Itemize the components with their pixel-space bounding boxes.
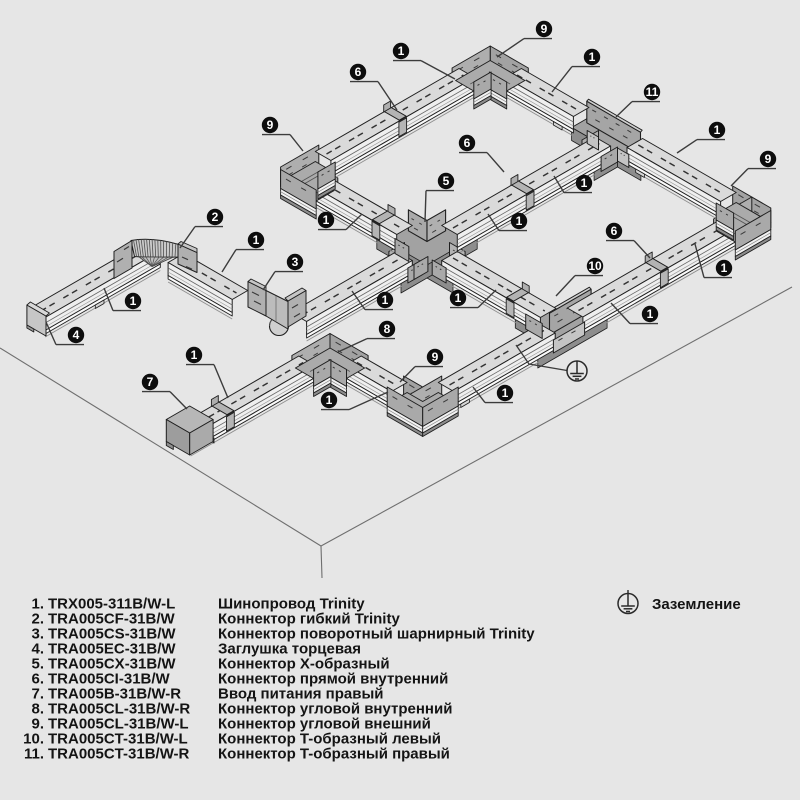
svg-text:1: 1 <box>130 294 137 308</box>
svg-text:6: 6 <box>464 136 471 150</box>
svg-text:1: 1 <box>253 233 260 247</box>
svg-text:9: 9 <box>765 152 772 166</box>
svg-text:1: 1 <box>398 44 405 58</box>
svg-text:1: 1 <box>516 214 523 228</box>
svg-text:6: 6 <box>611 224 618 238</box>
svg-text:1: 1 <box>191 348 198 362</box>
svg-text:1: 1 <box>326 393 333 407</box>
svg-text:1: 1 <box>502 386 509 400</box>
svg-text:6: 6 <box>355 65 362 79</box>
svg-text:Заземление: Заземление <box>652 596 741 613</box>
svg-text:9: 9 <box>432 350 439 364</box>
svg-text:1: 1 <box>589 50 596 64</box>
svg-text:9: 9 <box>541 22 548 36</box>
svg-text:8: 8 <box>384 322 391 336</box>
svg-text:1: 1 <box>323 213 330 227</box>
svg-text:7: 7 <box>147 375 154 389</box>
svg-text:5: 5 <box>443 174 450 188</box>
svg-text:4: 4 <box>73 328 80 342</box>
svg-text:2: 2 <box>212 210 219 224</box>
svg-text:1: 1 <box>455 291 462 305</box>
svg-text:9: 9 <box>267 118 274 132</box>
svg-text:3: 3 <box>292 255 299 269</box>
svg-text:11: 11 <box>646 85 659 99</box>
svg-text:1: 1 <box>647 307 654 321</box>
svg-text:1: 1 <box>382 293 389 307</box>
svg-text:1: 1 <box>581 176 588 190</box>
svg-text:1: 1 <box>714 123 721 137</box>
svg-text:11.: 11. <box>24 746 44 763</box>
svg-text:TRA005CT-31B/W-R: TRA005CT-31B/W-R <box>48 746 190 763</box>
svg-text:1: 1 <box>721 261 728 275</box>
svg-text:Коннектор T-образный правый: Коннектор T-образный правый <box>218 746 450 763</box>
svg-text:10: 10 <box>588 259 602 273</box>
